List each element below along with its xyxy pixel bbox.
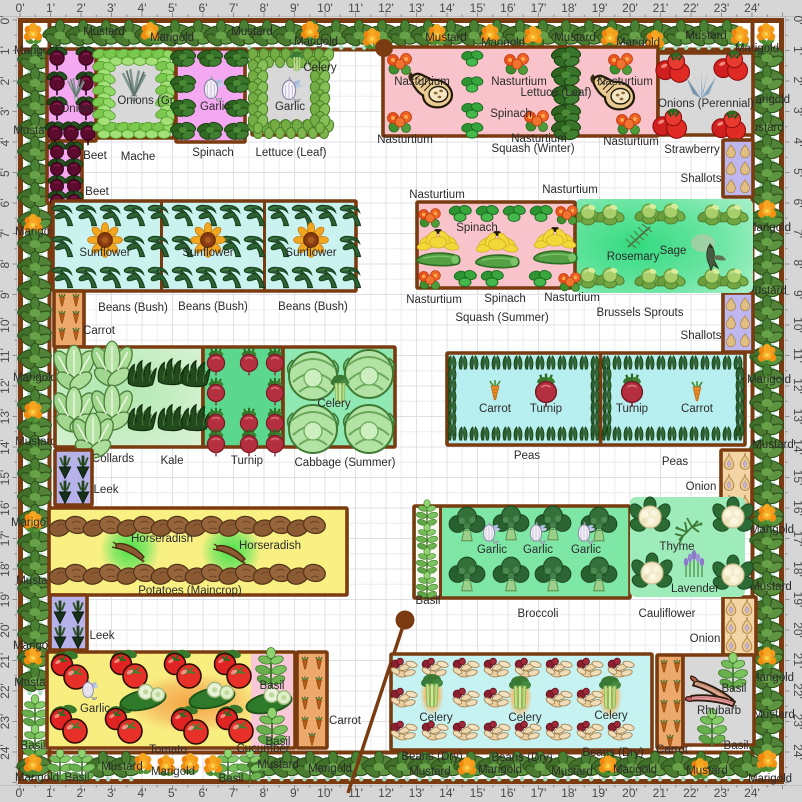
svg-text:Basil: Basil (724, 740, 749, 752)
svg-text:Marigold: Marigold (151, 766, 195, 778)
svg-text:9': 9' (791, 290, 802, 299)
svg-text:Cauliflower: Cauliflower (639, 608, 696, 620)
svg-text:Mustard: Mustard (231, 26, 273, 38)
svg-text:21': 21' (653, 786, 669, 800)
svg-text:Turnip: Turnip (530, 403, 562, 415)
svg-text:Beans (Dry): Beans (Dry) (491, 752, 553, 764)
svg-text:13': 13' (0, 409, 12, 425)
svg-text:4': 4' (138, 786, 147, 800)
svg-text:Basil: Basil (21, 740, 46, 752)
svg-text:12': 12' (791, 378, 802, 394)
svg-text:Turnip: Turnip (231, 455, 263, 467)
svg-text:Beans (Bush): Beans (Bush) (178, 301, 248, 313)
svg-text:21': 21' (0, 653, 12, 669)
svg-text:Beans (Dry): Beans (Dry) (401, 751, 463, 763)
svg-text:19': 19' (791, 592, 802, 608)
svg-text:Mustard: Mustard (686, 765, 728, 777)
svg-text:11': 11' (791, 348, 802, 363)
svg-text:Spinach: Spinach (192, 147, 234, 159)
svg-text:20': 20' (622, 1, 638, 15)
svg-text:Potatoes (Maincrop): Potatoes (Maincrop) (138, 585, 242, 597)
svg-text:Celery: Celery (508, 712, 541, 724)
svg-text:7': 7' (791, 229, 802, 238)
svg-text:Mustard: Mustard (83, 26, 125, 38)
svg-text:22': 22' (791, 683, 802, 699)
svg-text:3': 3' (791, 107, 802, 116)
svg-text:Marigold: Marigold (150, 32, 194, 44)
svg-text:6': 6' (0, 199, 12, 208)
svg-text:21': 21' (791, 653, 802, 669)
svg-text:9': 9' (290, 1, 299, 15)
svg-text:Carrot: Carrot (83, 325, 116, 337)
svg-text:5': 5' (168, 786, 177, 800)
svg-text:15': 15' (791, 470, 802, 486)
svg-text:Sage: Sage (660, 245, 687, 257)
svg-text:20': 20' (622, 786, 638, 800)
svg-text:Mustard: Mustard (685, 30, 727, 42)
svg-text:21': 21' (653, 1, 669, 15)
svg-text:Beans (Bush): Beans (Bush) (278, 301, 348, 313)
svg-text:Onion: Onion (686, 481, 717, 493)
svg-text:Mustard: Mustard (554, 32, 596, 44)
svg-text:Turnip: Turnip (616, 403, 648, 415)
svg-text:24': 24' (0, 744, 12, 760)
svg-text:14': 14' (0, 439, 12, 455)
svg-text:8': 8' (260, 1, 269, 15)
svg-text:9': 9' (290, 786, 299, 800)
svg-text:7': 7' (229, 1, 238, 15)
svg-text:Marigold: Marigold (747, 222, 791, 234)
svg-text:Beans (Dry): Beans (Dry) (582, 747, 644, 759)
svg-text:Mustard: Mustard (752, 439, 794, 451)
svg-text:2': 2' (77, 786, 86, 800)
svg-text:17': 17' (531, 786, 547, 800)
svg-text:10': 10' (791, 317, 802, 333)
svg-text:Peas: Peas (662, 456, 688, 468)
svg-text:24': 24' (744, 786, 760, 800)
svg-text:Horseradish: Horseradish (131, 533, 193, 545)
svg-text:1': 1' (791, 46, 802, 55)
svg-text:17': 17' (531, 1, 547, 15)
svg-text:Spinach: Spinach (456, 222, 498, 234)
svg-text:7': 7' (0, 229, 12, 238)
svg-text:Celery: Celery (419, 712, 452, 724)
svg-text:Marigold: Marigold (308, 763, 352, 775)
svg-text:20': 20' (0, 622, 12, 638)
svg-text:Onions (Perennial): Onions (Perennial) (658, 98, 754, 110)
svg-text:11': 11' (0, 348, 12, 363)
svg-text:Collards: Collards (92, 453, 134, 465)
svg-text:20': 20' (791, 622, 802, 638)
svg-text:Leek: Leek (90, 630, 115, 642)
svg-text:Marigold: Marigold (750, 524, 794, 536)
svg-text:18': 18' (561, 1, 577, 15)
svg-text:Spinach: Spinach (490, 108, 532, 120)
svg-text:Thyme: Thyme (659, 541, 694, 553)
svg-text:18': 18' (791, 561, 802, 577)
svg-text:15': 15' (470, 1, 486, 15)
svg-text:Garlic: Garlic (523, 544, 553, 556)
svg-text:0': 0' (0, 16, 12, 25)
svg-text:Nasturtium: Nasturtium (377, 134, 433, 146)
svg-text:18': 18' (561, 786, 577, 800)
svg-text:Cabbage (Summer): Cabbage (Summer) (295, 457, 396, 469)
svg-text:Marigold: Marigold (748, 773, 792, 785)
svg-text:12': 12' (378, 786, 394, 800)
svg-text:Horseradish: Horseradish (239, 540, 301, 552)
svg-text:22': 22' (683, 1, 699, 15)
svg-text:Sunflower: Sunflower (182, 247, 233, 259)
svg-text:13': 13' (409, 1, 425, 15)
svg-text:Basil: Basil (266, 736, 291, 748)
svg-text:Marigold: Marigold (478, 764, 522, 776)
svg-text:Mustard: Mustard (409, 766, 451, 778)
svg-text:Celery: Celery (303, 62, 336, 74)
svg-text:Onion: Onion (690, 633, 721, 645)
svg-text:19': 19' (592, 1, 608, 15)
svg-text:18': 18' (0, 561, 12, 577)
svg-text:8': 8' (260, 786, 269, 800)
svg-text:22': 22' (683, 786, 699, 800)
svg-text:Garlic: Garlic (275, 101, 305, 113)
svg-text:7': 7' (229, 786, 238, 800)
svg-text:Tomato: Tomato (149, 744, 187, 756)
svg-text:Squash (Winter): Squash (Winter) (491, 143, 574, 155)
svg-text:5': 5' (0, 168, 12, 177)
svg-text:Nasturtium: Nasturtium (406, 294, 462, 306)
svg-text:24': 24' (791, 744, 802, 760)
svg-text:3': 3' (107, 1, 116, 15)
svg-text:Celery: Celery (317, 398, 350, 410)
svg-text:12': 12' (0, 378, 12, 394)
svg-text:Basil: Basil (416, 595, 441, 607)
svg-text:Marigold: Marigold (750, 672, 794, 684)
svg-text:5': 5' (168, 1, 177, 15)
svg-text:Mustard: Mustard (750, 581, 792, 593)
svg-text:13': 13' (409, 786, 425, 800)
svg-text:1': 1' (0, 46, 12, 55)
svg-text:16': 16' (500, 786, 516, 800)
svg-text:24': 24' (744, 1, 760, 15)
svg-text:Spinach: Spinach (484, 293, 526, 305)
svg-text:Beet: Beet (85, 186, 109, 198)
svg-text:13': 13' (791, 409, 802, 425)
svg-text:Nasturtium: Nasturtium (603, 136, 659, 148)
svg-text:23': 23' (714, 1, 730, 15)
svg-text:Celery: Celery (594, 710, 627, 722)
svg-text:Garlic: Garlic (200, 101, 230, 113)
svg-text:Rosemary: Rosemary (607, 251, 660, 263)
svg-text:4': 4' (791, 138, 802, 147)
svg-text:Brussels Sprouts: Brussels Sprouts (597, 307, 684, 319)
svg-text:Marigold: Marigold (613, 764, 657, 776)
svg-text:0': 0' (16, 1, 25, 15)
svg-text:Carrot: Carrot (681, 403, 714, 415)
svg-text:Nasturtium: Nasturtium (544, 292, 600, 304)
svg-text:Carrot: Carrot (329, 715, 362, 727)
svg-text:Mustard: Mustard (753, 709, 795, 721)
svg-text:Broccoli: Broccoli (518, 608, 559, 620)
svg-text:14': 14' (439, 786, 455, 800)
svg-text:Peas: Peas (514, 450, 540, 462)
svg-text:4': 4' (0, 138, 12, 147)
svg-text:Lavender: Lavender (671, 583, 719, 595)
svg-text:14': 14' (439, 1, 455, 15)
svg-text:Mustard: Mustard (551, 766, 593, 778)
svg-text:16': 16' (500, 1, 516, 15)
svg-text:Nasturtium: Nasturtium (542, 184, 598, 196)
svg-text:Sunflower: Sunflower (285, 247, 336, 259)
svg-text:16': 16' (0, 500, 12, 516)
svg-text:16': 16' (791, 500, 802, 516)
svg-text:Garlic: Garlic (477, 544, 507, 556)
svg-text:8': 8' (0, 260, 12, 269)
svg-text:Kale: Kale (160, 455, 183, 467)
svg-text:19': 19' (0, 592, 12, 608)
svg-text:3': 3' (0, 107, 12, 116)
svg-text:23': 23' (0, 714, 12, 730)
svg-text:Shallots: Shallots (681, 173, 722, 185)
svg-text:2': 2' (77, 1, 86, 15)
svg-text:Mache: Mache (121, 151, 156, 163)
svg-text:5': 5' (791, 168, 802, 177)
svg-text:Beet: Beet (83, 150, 107, 162)
svg-text:17': 17' (0, 531, 12, 547)
svg-text:Marigold: Marigold (747, 374, 791, 386)
svg-text:1': 1' (46, 786, 55, 800)
svg-text:Basil: Basil (65, 772, 90, 784)
svg-text:10': 10' (0, 317, 12, 333)
svg-text:Beans (Bush): Beans (Bush) (98, 302, 168, 314)
svg-text:6': 6' (791, 199, 802, 208)
svg-text:22': 22' (0, 683, 12, 699)
svg-text:Mustard: Mustard (257, 759, 299, 771)
svg-text:Lettuce (Leaf): Lettuce (Leaf) (521, 87, 592, 99)
svg-text:15': 15' (0, 470, 12, 486)
svg-text:10': 10' (317, 786, 333, 800)
svg-text:Strawberry: Strawberry (664, 144, 720, 156)
svg-text:Rhubarb: Rhubarb (697, 705, 741, 717)
svg-text:8': 8' (791, 260, 802, 269)
svg-text:10': 10' (317, 1, 333, 15)
svg-text:3': 3' (107, 786, 116, 800)
svg-text:19': 19' (592, 786, 608, 800)
svg-text:Basil: Basil (260, 680, 285, 692)
svg-text:Nasturtium: Nasturtium (409, 189, 465, 201)
svg-text:6': 6' (199, 1, 208, 15)
svg-text:11': 11' (348, 1, 363, 15)
svg-text:12': 12' (378, 1, 394, 15)
svg-text:Squash (Summer): Squash (Summer) (455, 312, 548, 324)
svg-text:Mustard: Mustard (101, 761, 143, 773)
svg-text:2': 2' (791, 77, 802, 86)
svg-text:Marigold: Marigold (13, 372, 57, 384)
svg-text:Mustard: Mustard (425, 32, 467, 44)
svg-text:15': 15' (470, 786, 486, 800)
svg-text:4': 4' (138, 1, 147, 15)
svg-text:Carrot: Carrot (479, 403, 512, 415)
svg-text:Lettuce (Leaf): Lettuce (Leaf) (256, 147, 327, 159)
svg-text:Basil: Basil (722, 683, 747, 695)
svg-text:Basil: Basil (219, 773, 244, 785)
svg-text:Nasturtium: Nasturtium (597, 76, 653, 88)
svg-text:23': 23' (714, 786, 730, 800)
svg-text:0': 0' (791, 16, 802, 25)
svg-text:2': 2' (0, 77, 12, 86)
svg-text:0': 0' (16, 786, 25, 800)
svg-text:Leek: Leek (94, 484, 119, 496)
svg-text:Mustard: Mustard (15, 436, 57, 448)
svg-text:Sunflower: Sunflower (79, 247, 130, 259)
svg-text:Garlic: Garlic (571, 544, 601, 556)
svg-text:Shallots: Shallots (681, 330, 722, 342)
svg-text:6': 6' (199, 786, 208, 800)
svg-text:Marigold: Marigold (294, 36, 338, 48)
svg-text:Marigold: Marigold (15, 772, 59, 784)
svg-text:Garlic: Garlic (80, 703, 110, 715)
svg-text:Nasturtium: Nasturtium (394, 76, 450, 88)
svg-text:1': 1' (46, 1, 55, 15)
svg-text:9': 9' (0, 290, 12, 299)
